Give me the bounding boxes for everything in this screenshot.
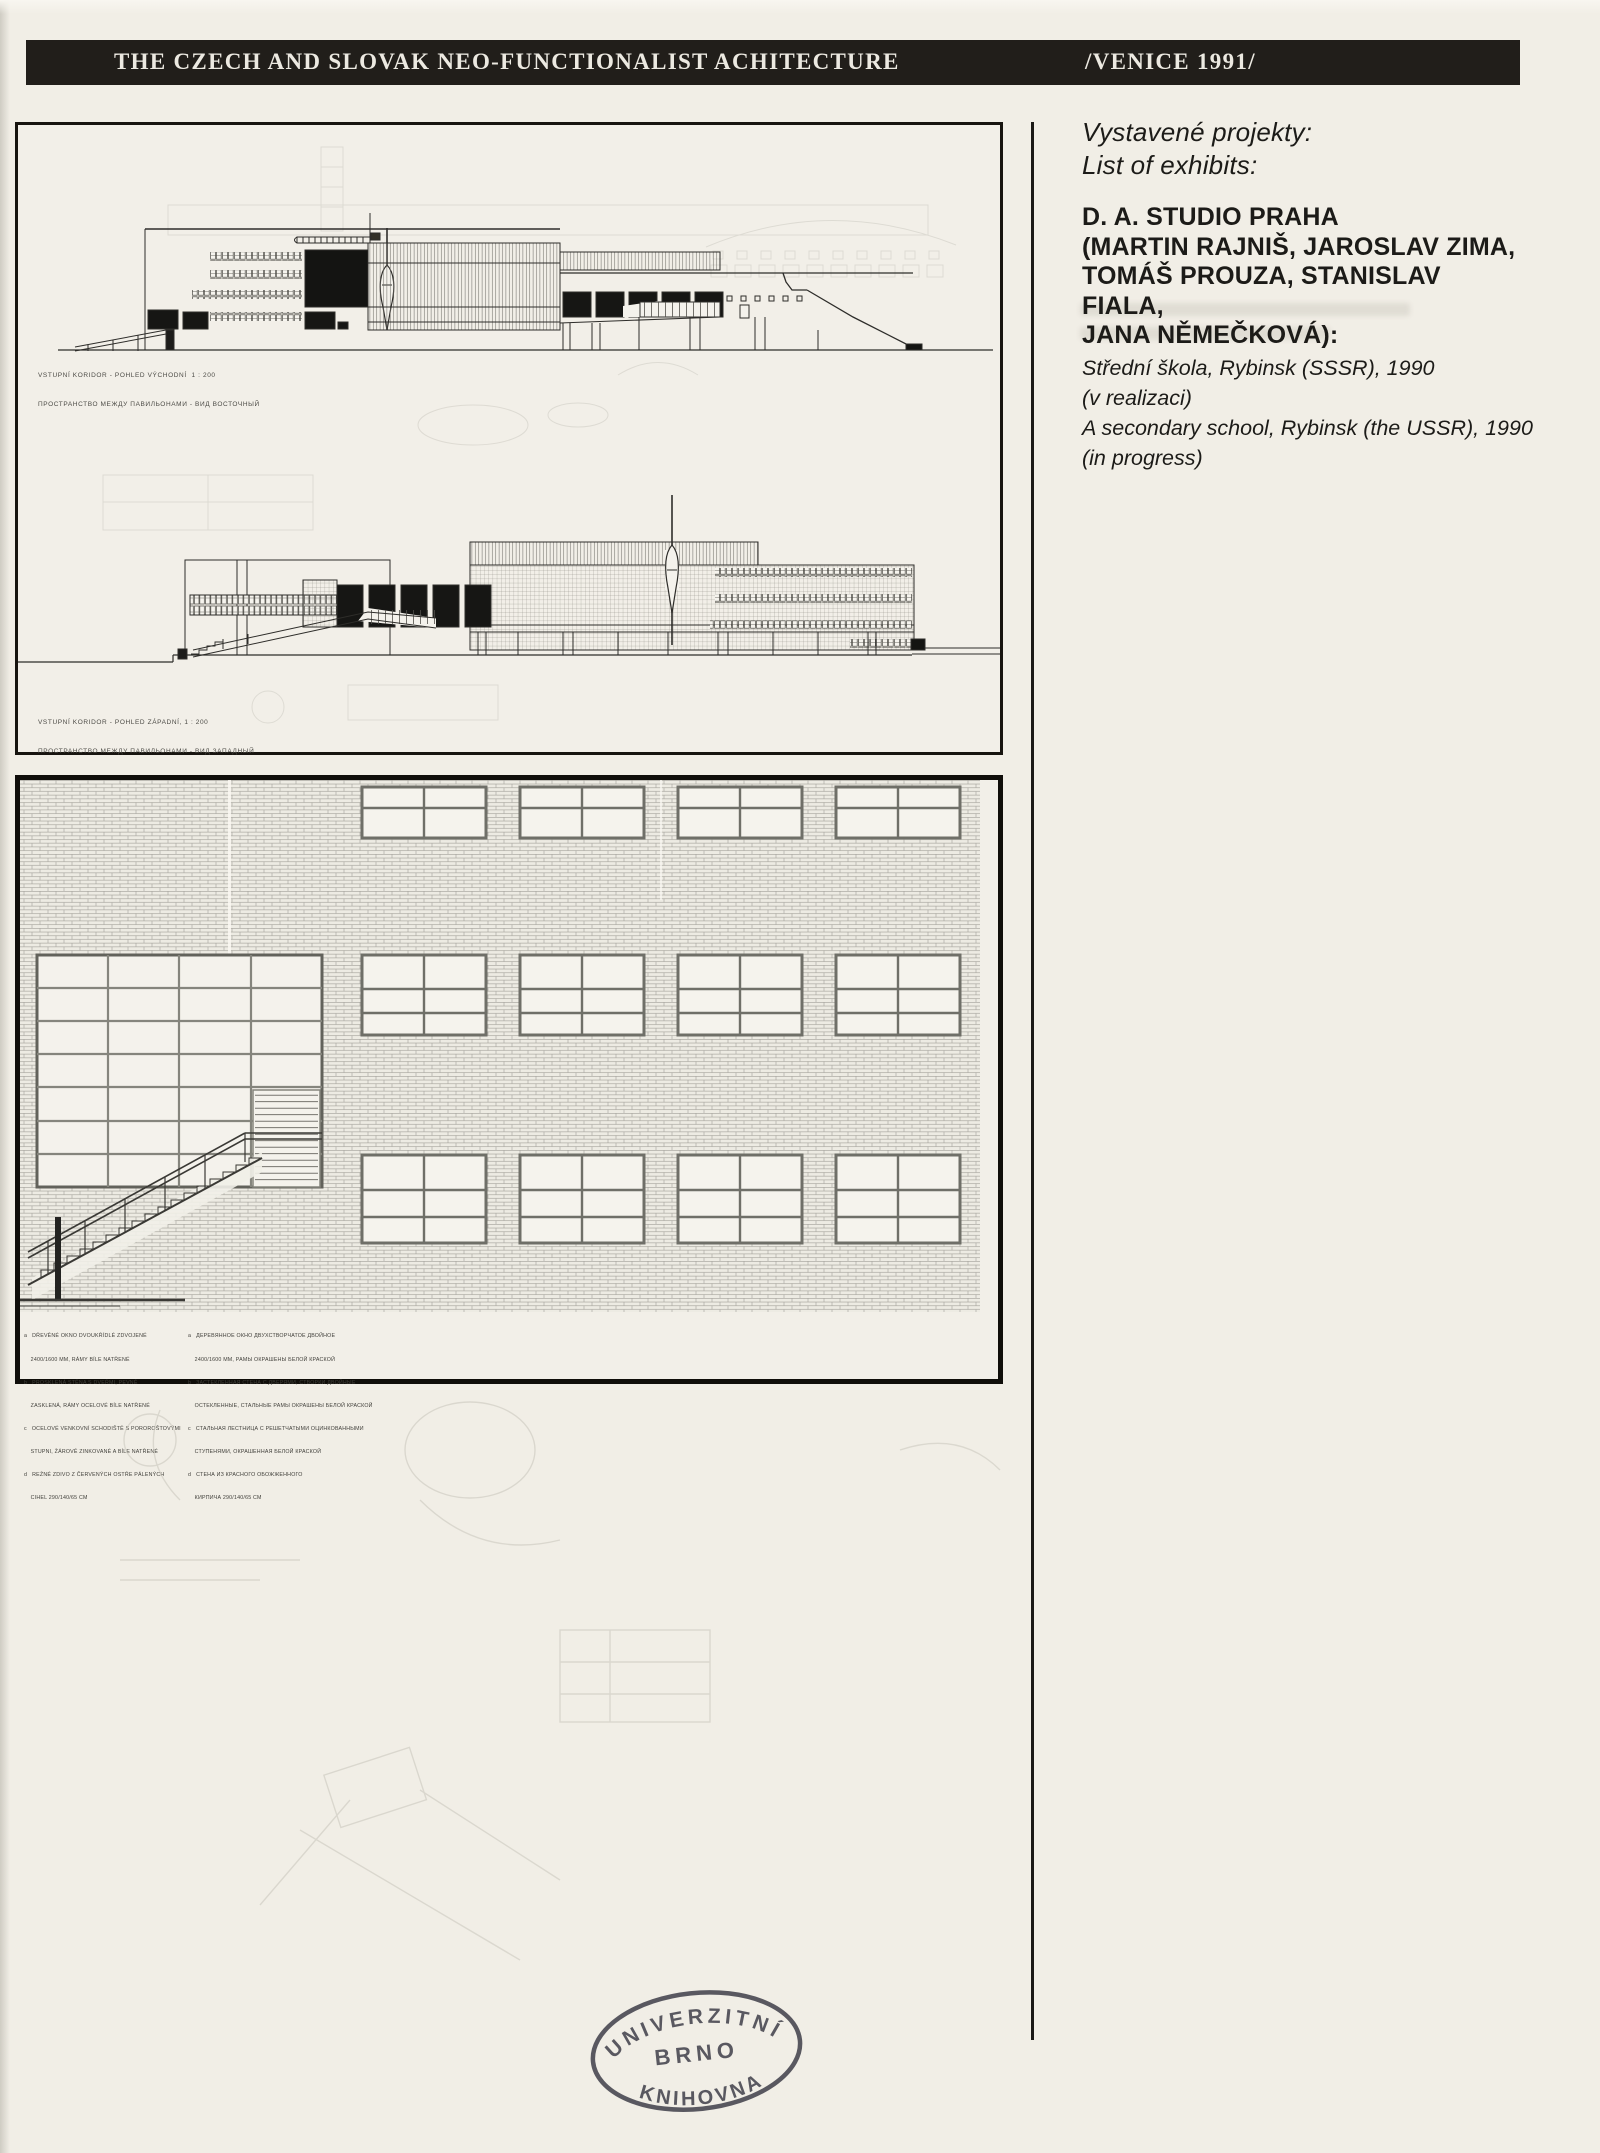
stamp-text-middle: BRNO xyxy=(653,2037,740,2071)
library-stamp: UNIVERZITNÍ BRNO KNIHOVNA xyxy=(565,1968,829,2143)
scanned-catalog-page: THE CZECH AND SLOVAK NEO-FUNCTIONALIST A… xyxy=(0,0,1600,2153)
page-bleed-through-ghosts xyxy=(0,0,1600,2153)
